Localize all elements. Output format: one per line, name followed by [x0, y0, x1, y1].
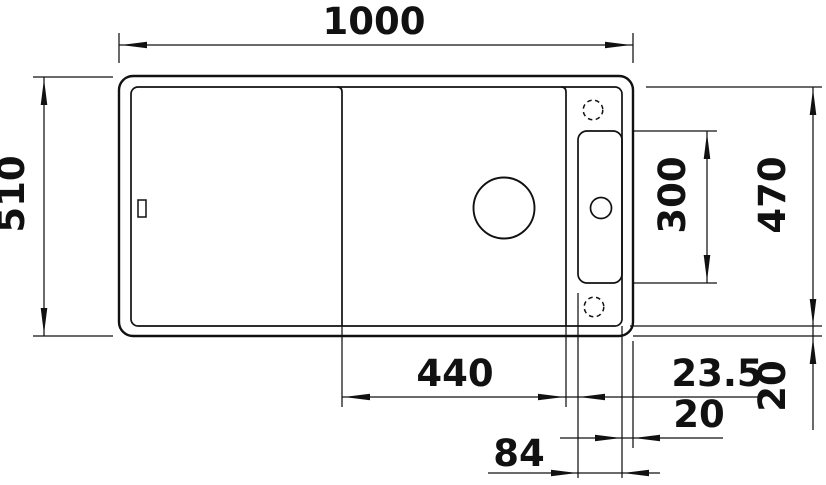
drain-hole — [474, 178, 535, 239]
arrow-510-down — [41, 308, 48, 334]
arrow-470-up — [810, 89, 817, 115]
sink-outline — [119, 76, 633, 336]
label-overall-width: 1000 — [323, 0, 426, 43]
label-inner-depth: 470 — [751, 156, 794, 233]
arrow-440-left — [344, 394, 370, 401]
arrow-20h-right — [595, 435, 621, 442]
label-bowl-section-width: 440 — [416, 352, 493, 395]
arrow-84-left — [623, 470, 649, 477]
arrow-20v-up — [810, 338, 817, 364]
sink-inner-rim — [131, 87, 622, 326]
arrow-470-down — [810, 299, 817, 325]
arrow-300-up — [704, 133, 711, 159]
accessory-rail — [578, 131, 622, 283]
arrow-84-right — [551, 470, 577, 477]
arrow-20h-left — [634, 435, 660, 442]
arrow-23-5-left — [579, 394, 605, 401]
optional-tap-hole-bottom — [584, 297, 604, 317]
label-overall-depth: 510 — [0, 155, 33, 232]
drawing-canvas: 1000 510 470 300 440 23.5 20 84 20 — [0, 0, 826, 485]
label-bowl-to-rail-offset: 23.5 — [671, 352, 762, 395]
tap-hole — [591, 198, 612, 219]
cutting-board-slot — [138, 200, 146, 217]
arrow-1000-left — [121, 42, 147, 49]
arrow-510-up — [41, 79, 48, 105]
arrow-1000-right — [605, 42, 631, 49]
arrow-300-down — [704, 255, 711, 281]
label-rail-length: 300 — [651, 156, 694, 233]
bowl-divider — [561, 87, 566, 326]
optional-tap-hole-top — [583, 100, 603, 120]
label-rim-offset-vertical: 20 — [751, 360, 794, 412]
drainboard-divider — [337, 87, 342, 326]
sink-dimension-drawing: 1000 510 470 300 440 23.5 20 84 20 — [0, 0, 826, 485]
label-rim-offset-horizontal: 20 — [673, 393, 725, 436]
arrow-440-right — [538, 394, 564, 401]
label-rail-width: 84 — [493, 432, 545, 475]
